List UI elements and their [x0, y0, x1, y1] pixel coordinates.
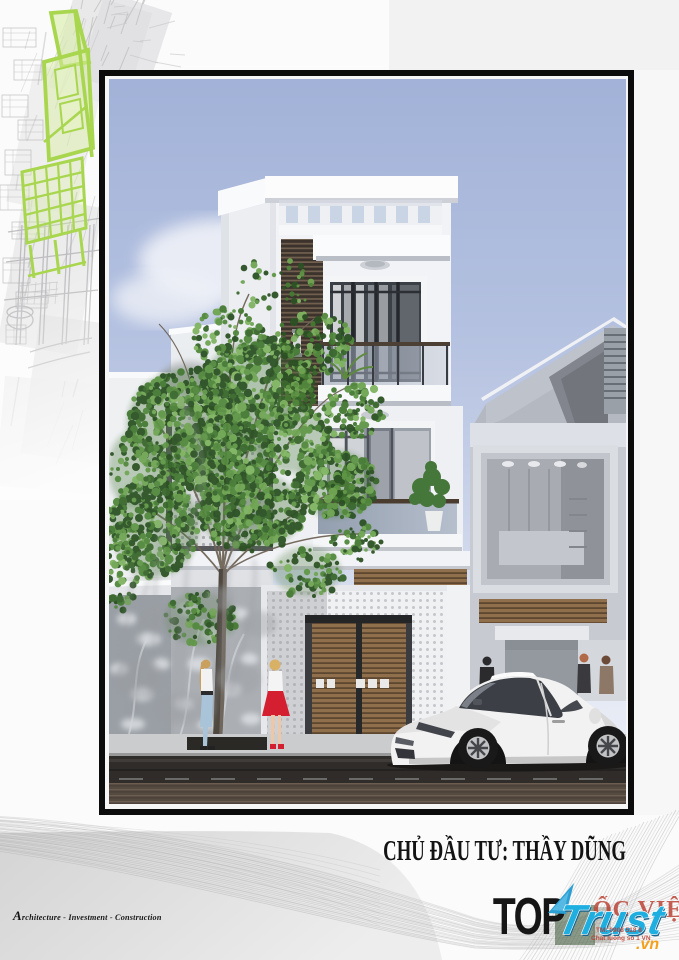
svg-text:.vn: .vn [636, 936, 659, 953]
svg-text:TM: 0908 518 8: TM: 0908 518 8 [596, 927, 642, 934]
